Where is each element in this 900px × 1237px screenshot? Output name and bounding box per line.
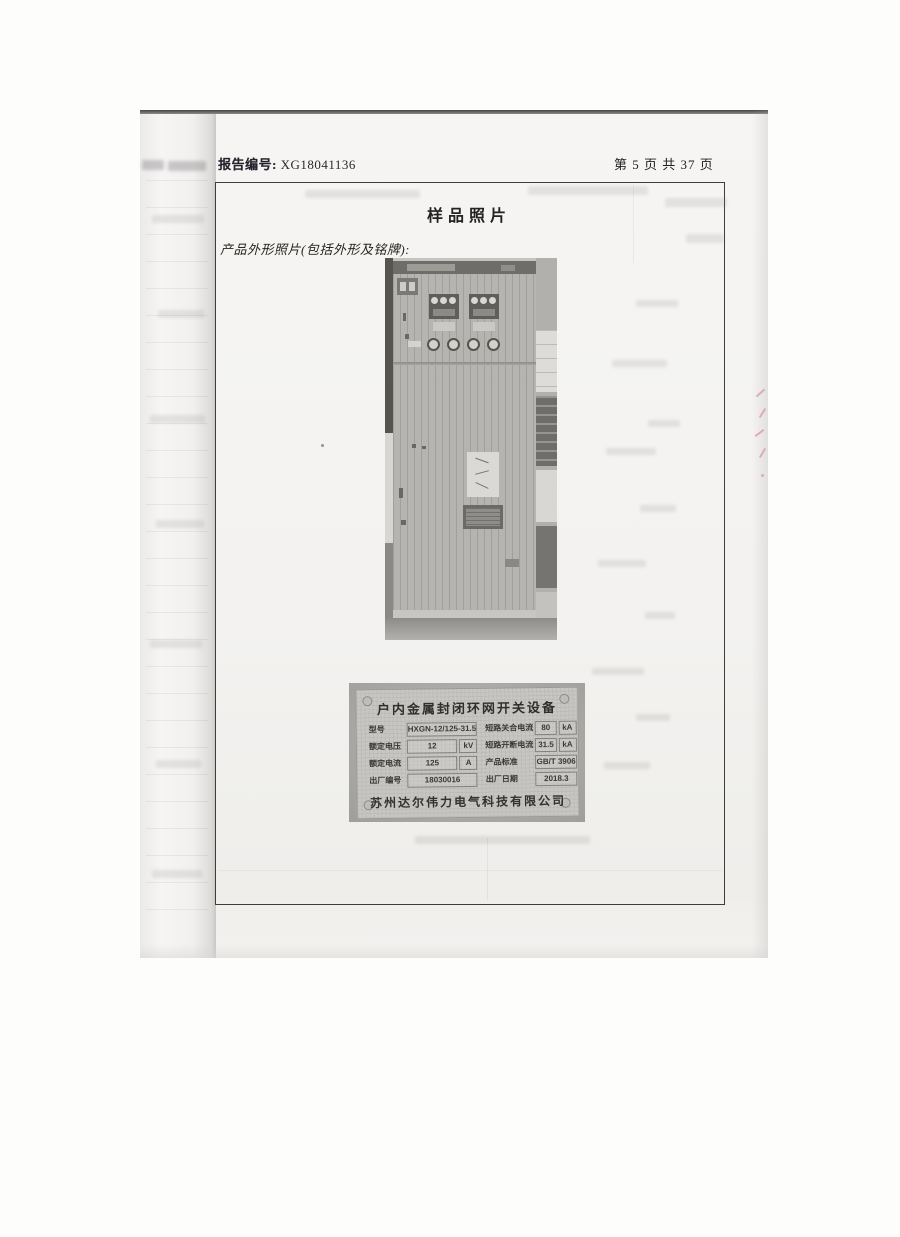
nameplate-table: 型号 HXGN-12/125-31.5 额定电压 12 kV 额定电流 125 … xyxy=(369,721,567,787)
nameplate-row: 额定电压 12 kV xyxy=(369,739,478,753)
bleed-smudge xyxy=(612,360,667,367)
bleed-smudge xyxy=(305,190,420,198)
bleed-smudge xyxy=(528,186,648,195)
photo-floor xyxy=(385,618,557,640)
adjacent-cabinet-strip xyxy=(536,258,557,618)
bleed-smudge xyxy=(604,762,650,769)
bleed-smudge xyxy=(150,415,205,423)
bleed-smudge xyxy=(415,836,590,844)
nameplate-row: 型号 HXGN-12/125-31.5 xyxy=(369,722,478,736)
cabinet-instrument-label-1 xyxy=(433,322,455,331)
cabinet-mark xyxy=(422,446,426,449)
cabinet-top-label-band xyxy=(393,261,536,274)
bleed-gridline xyxy=(218,870,722,871)
scanned-report-page: 报告编号: XG18041136 第 5 页 共 37 页 样品照片 产品外形照… xyxy=(0,0,900,1237)
cabinet-button-4 xyxy=(487,338,500,351)
nameplate-company: 苏州达尔伟力电气科技有限公司 xyxy=(357,792,578,812)
bleed-smudge xyxy=(636,714,670,721)
nameplate-row: 短路关合电流 80 kA xyxy=(485,721,576,735)
nameplate-left-column: 型号 HXGN-12/125-31.5 额定电压 12 kV 额定电流 125 … xyxy=(369,722,478,787)
bleed-smudge xyxy=(665,198,727,207)
nameplate-right-column: 短路关合电流 80 kA 短路开断电流 31.5 kA 产品标准 GB/T 39… xyxy=(485,721,577,786)
page-indicator: 第 5 页 共 37 页 xyxy=(614,154,714,173)
nameplate-row: 产品标准 GB/T 3906 xyxy=(486,755,577,769)
nameplate-row: 额定电流 125 A xyxy=(369,756,478,770)
cabinet-instrument-label-2 xyxy=(473,322,495,331)
nameplate-title: 户内金属封闭环网开关设备 xyxy=(356,697,577,719)
cabinet-door-divider xyxy=(393,362,536,365)
report-number-label: 报告编号: xyxy=(218,157,277,172)
cabinet-mark xyxy=(405,334,409,339)
bleed-smudge xyxy=(598,560,646,567)
ink-dot xyxy=(321,444,324,447)
cabinet-small-plate xyxy=(397,278,418,295)
cabinet-latch xyxy=(505,559,519,567)
bleed-smudge xyxy=(640,505,676,512)
paper-right-fade xyxy=(752,110,768,958)
nameplate-photo: 户内金属封闭环网开关设备 型号 HXGN-12/125-31.5 额定电压 12… xyxy=(349,683,585,822)
cabinet-mark xyxy=(399,488,403,498)
cabinet-mark xyxy=(412,444,416,448)
bleed-smudge xyxy=(150,640,202,648)
bleed-smudge xyxy=(152,870,202,878)
cabinet-base xyxy=(393,610,536,618)
cabinet-schematic-plate xyxy=(467,452,499,497)
cabinet-button-plate xyxy=(408,341,421,347)
pink-ink-dot xyxy=(761,474,764,477)
cabinet-photo xyxy=(385,258,557,640)
cabinet-mark xyxy=(401,520,406,525)
cabinet-button-3 xyxy=(467,338,480,351)
bleed-smudge xyxy=(636,300,678,307)
bleed-gridline xyxy=(633,185,634,263)
report-number-line: 报告编号: XG18041136 xyxy=(218,154,356,173)
bleed-smudge xyxy=(158,310,204,318)
cabinet-vent-window xyxy=(463,505,503,529)
page-curl xyxy=(140,114,216,958)
paper-bottom-fade xyxy=(140,944,768,958)
nameplate-row: 出厂编号 18030016 xyxy=(369,773,478,787)
bleed-smudge xyxy=(606,448,656,455)
cabinet-mark xyxy=(403,313,406,321)
bleed-smudge xyxy=(686,234,724,243)
section-title: 样品照片 xyxy=(215,202,723,226)
cabinet-instrument-cluster-1 xyxy=(429,294,459,319)
bleed-smudge xyxy=(648,420,680,427)
report-number-value: XG18041136 xyxy=(281,157,356,172)
cabinet-button-2 xyxy=(447,338,460,351)
nameplate-row: 出厂日期 2018.3 xyxy=(486,772,577,786)
paper-sheet: 报告编号: XG18041136 第 5 页 共 37 页 样品照片 产品外形照… xyxy=(140,110,768,958)
cabinet-left-strip xyxy=(385,258,393,433)
bleed-smudge xyxy=(645,612,675,619)
nameplate-plate: 户内金属封闭环网开关设备 型号 HXGN-12/125-31.5 额定电压 12… xyxy=(355,687,580,820)
nameplate-row: 短路开断电流 31.5 kA xyxy=(485,738,576,752)
bleed-smudge xyxy=(156,760,201,768)
paper-top-edge xyxy=(140,110,768,114)
cabinet-instrument-cluster-2 xyxy=(469,294,499,319)
bleed-smudge xyxy=(156,520,204,528)
bleed-gridline xyxy=(487,838,488,900)
cabinet-left-lower xyxy=(385,433,393,543)
bleed-smudge xyxy=(142,160,164,170)
photo-caption: 产品外形照片(包括外形及铭牌): xyxy=(220,239,410,258)
bleed-smudge xyxy=(168,161,206,171)
bleed-smudge xyxy=(152,215,204,223)
bleed-smudge xyxy=(592,668,644,675)
cabinet-button-1 xyxy=(427,338,440,351)
